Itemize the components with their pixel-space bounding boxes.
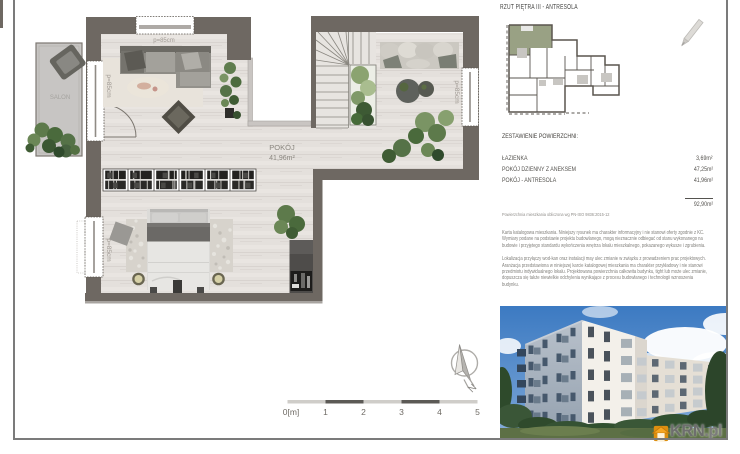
svg-text:POKÓJ: POKÓJ (269, 143, 295, 152)
svg-text:p=85cm: p=85cm (453, 80, 460, 103)
svg-text:3: 3 (399, 407, 404, 417)
svg-text:4: 4 (437, 407, 442, 417)
svg-text:p=85cm: p=85cm (153, 38, 175, 44)
svg-text:0[m]: 0[m] (283, 407, 300, 417)
svg-text:2: 2 (361, 407, 366, 417)
svg-text:41,96m²: 41,96m² (269, 155, 295, 162)
svg-text:N: N (466, 382, 479, 395)
svg-text:p=85cm: p=85cm (105, 238, 112, 261)
svg-text:5: 5 (475, 407, 480, 417)
svg-text:p=85cm: p=85cm (105, 74, 112, 97)
svg-text:SALON: SALON (50, 95, 70, 101)
svg-text:1: 1 (323, 407, 328, 417)
